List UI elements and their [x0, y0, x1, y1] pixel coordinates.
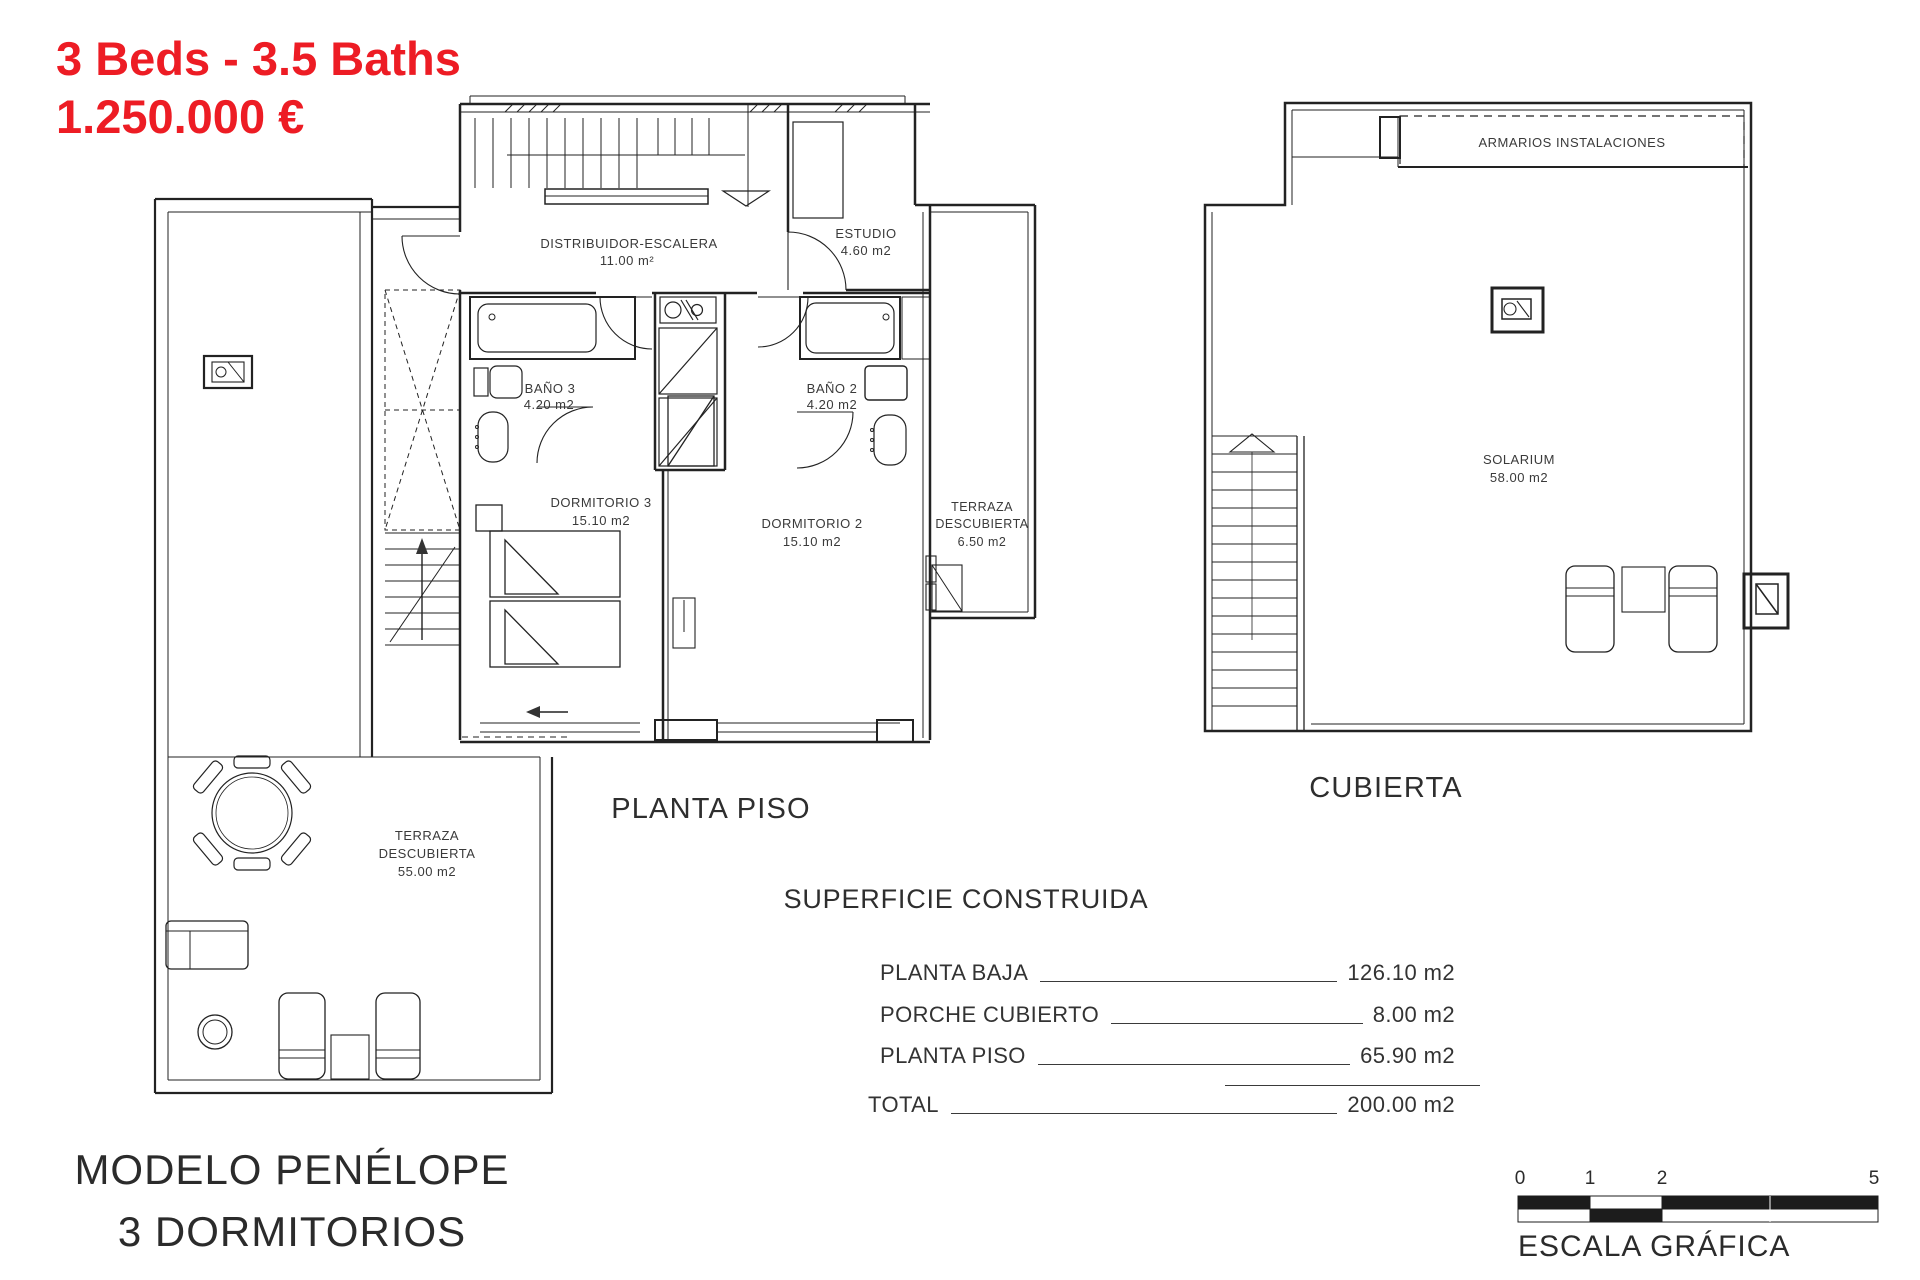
row-value: 126.10 m2 [1347, 960, 1455, 986]
room-area-dormitorio2: 15.10 m2 [783, 534, 841, 549]
scale-title: ESCALA GRÁFICA [1518, 1230, 1790, 1264]
roof-plan [1205, 103, 1788, 731]
roof-staircase [1212, 434, 1304, 731]
scale-tick-5: 5 [1869, 1168, 1880, 1190]
beds-baths-text: 3 Beds - 3.5 Baths [56, 30, 461, 88]
bano3-fixtures [470, 297, 635, 462]
table-row: PLANTA BAJA 126.10 m2 [880, 960, 1455, 986]
leader-line [1040, 980, 1337, 982]
stair-down-arrow-icon [723, 191, 769, 206]
toilet-icon [474, 368, 488, 396]
armarios-label: ARMARIOS INSTALACIONES [1478, 135, 1665, 150]
room-label-distribuidor: DISTRIBUIDOR-ESCALERA [540, 236, 717, 251]
sun-lounger-icon [1669, 566, 1717, 652]
roof-plan-title: CUBIERTA [1309, 772, 1463, 805]
sofa-icon [166, 921, 248, 969]
room-label-terraza-principal-1: TERRAZA [395, 828, 459, 843]
estudio-desk [793, 122, 843, 218]
plan-linework [0, 0, 1920, 1280]
staircase-upper [475, 104, 769, 207]
room-area-terraza-lateral: 6.50 m2 [958, 535, 1007, 549]
room-label-terraza-lateral-2: DESCUBIERTA [935, 517, 1028, 531]
room-label-bano3: BAÑO 3 [525, 381, 576, 396]
table-row: PLANTA PISO 65.90 m2 [880, 1043, 1455, 1069]
model-subtitle: 3 DORMITORIOS [118, 1208, 466, 1256]
total-label: TOTAL [868, 1092, 939, 1118]
terraza-principal-walls [155, 757, 552, 1093]
chimney-icon [204, 356, 252, 388]
room-label-dormitorio3: DORMITORIO 3 [550, 495, 651, 510]
stair-void [385, 290, 460, 530]
bed-icon [490, 601, 620, 667]
room-area-solarium: 58.00 m2 [1490, 470, 1548, 485]
room-area-bano3: 4.20 m2 [524, 397, 574, 412]
room-area-bano2: 4.20 m2 [807, 397, 857, 412]
chair-icon [234, 858, 270, 870]
stair-up-arrow-icon [1230, 434, 1274, 452]
row-label: PLANTA BAJA [880, 960, 1028, 986]
sun-lounger-icon [279, 993, 325, 1079]
room-label-bano2: BAÑO 2 [807, 381, 858, 396]
side-table-icon [331, 1035, 369, 1079]
stair-up-arrow-icon [416, 538, 428, 554]
room-label-terraza-principal-2: DESCUBIERTA [379, 846, 476, 861]
room-area-terraza-principal: 55.00 m2 [398, 864, 456, 879]
sun-lounger-icon [376, 993, 420, 1079]
room-label-dormitorio2: DORMITORIO 2 [761, 516, 862, 531]
row-value: 65.90 m2 [1360, 1043, 1455, 1069]
hall-door-arc [402, 236, 460, 294]
floorplan-sheet: 3 Beds - 3.5 Baths 1.250.000 € DISTRIBUI… [0, 0, 1920, 1280]
bano3-door-arc [600, 297, 652, 349]
dormitorio3-furniture [476, 505, 620, 667]
table-total-row: TOTAL 200.00 m2 [868, 1092, 1455, 1118]
bano2-lower-door-arc [797, 412, 853, 468]
sink-icon [874, 415, 906, 465]
table-separator [1225, 1085, 1480, 1086]
leader-line [1038, 1063, 1350, 1065]
roof-inner-lines [1212, 110, 1744, 731]
leader-line [1111, 1022, 1363, 1024]
row-label: PORCHE CUBIERTO [880, 1002, 1099, 1028]
row-value: 8.00 m2 [1373, 1002, 1455, 1028]
room-label-estudio: ESTUDIO [835, 226, 896, 241]
listing-header: 3 Beds - 3.5 Baths 1.250.000 € [56, 30, 461, 146]
surface-table-title: SUPERFICIE CONSTRUIDA [784, 884, 1149, 915]
terrace-lounge-set [166, 921, 420, 1079]
leader-line [951, 1112, 1338, 1114]
terraza-lateral-walls [930, 205, 1035, 618]
nightstand-icon [476, 505, 502, 531]
sink-icon [478, 412, 508, 462]
chair-icon [234, 756, 270, 768]
scale-tick-1: 1 [1585, 1168, 1596, 1190]
room-label-terraza-lateral-1: TERRAZA [951, 500, 1013, 514]
scale-tick-0: 0 [1515, 1168, 1526, 1190]
floor-plan-title: PLANTA PISO [611, 793, 811, 826]
solarium-lounge-set [1566, 566, 1717, 652]
sun-lounger-icon [1566, 566, 1614, 652]
bed-icon [490, 531, 620, 597]
side-table-icon [1622, 567, 1665, 612]
bano3-lower-door-arc [537, 407, 593, 463]
skylight-icon [1492, 288, 1543, 332]
room-area-distribuidor: 11.00 m² [600, 253, 654, 268]
vanity-icon [865, 366, 907, 400]
entry-arrow-icon [526, 706, 568, 718]
model-name: MODELO PENÉLOPE [74, 1146, 509, 1194]
staircase-lower [385, 533, 460, 645]
total-value: 200.00 m2 [1347, 1092, 1455, 1118]
price-text: 1.250.000 € [56, 88, 461, 146]
room-area-dormitorio3: 15.10 m2 [572, 513, 630, 528]
terrace-dining-set [192, 756, 312, 870]
row-label: PLANTA PISO [880, 1043, 1026, 1069]
scale-tick-2: 2 [1657, 1168, 1668, 1190]
table-row: PORCHE CUBIERTO 8.00 m2 [880, 1002, 1455, 1028]
left-wing-walls [155, 199, 460, 1093]
room-area-estudio: 4.60 m2 [841, 243, 891, 258]
room-label-solarium: SOLARIUM [1483, 452, 1555, 467]
scale-bar [1518, 1196, 1878, 1222]
bathtub-icon [800, 297, 900, 359]
